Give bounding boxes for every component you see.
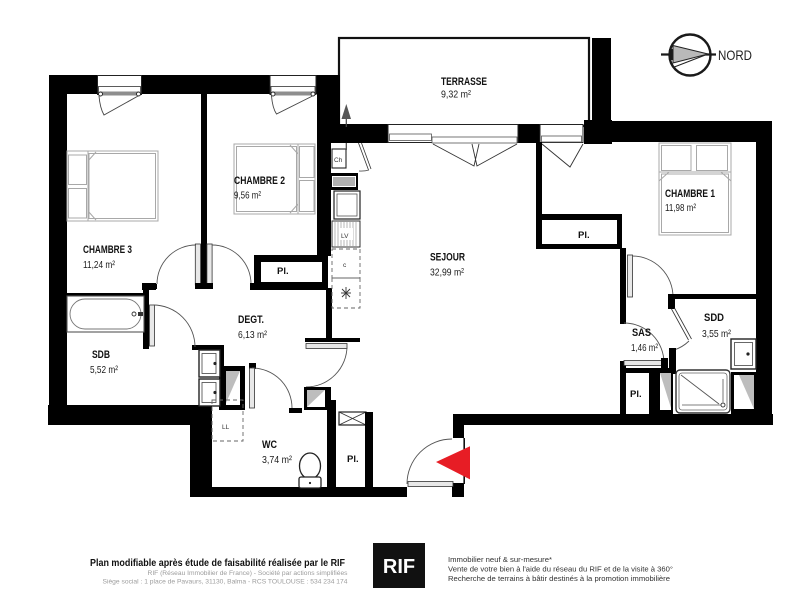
svg-text:Immobilier neuf & sur-mesure*: Immobilier neuf & sur-mesure* (448, 555, 552, 564)
svg-text:6,13 m²: 6,13 m² (238, 329, 267, 341)
svg-text:Ch: Ch (334, 157, 343, 164)
svg-text:Pl.: Pl. (347, 454, 359, 465)
svg-text:Recherche de terrains à bâtir: Recherche de terrains à bâtir destinés à… (448, 574, 670, 583)
svg-text:32,99 m²: 32,99 m² (430, 267, 464, 279)
svg-text:SAS: SAS (632, 327, 651, 339)
svg-text:3,55 m²: 3,55 m² (702, 328, 731, 340)
svg-text:WC: WC (262, 439, 277, 451)
svg-text:CHAMBRE 2: CHAMBRE 2 (234, 175, 285, 187)
svg-text:11,24 m²: 11,24 m² (83, 259, 115, 271)
svg-text:NORD: NORD (718, 47, 752, 63)
svg-text:11,98 m²: 11,98 m² (665, 202, 696, 214)
svg-text:5,52 m²: 5,52 m² (90, 364, 118, 376)
svg-text:TERRASSE: TERRASSE (441, 76, 487, 88)
svg-text:LV: LV (341, 233, 349, 240)
svg-text:3,74 m²: 3,74 m² (262, 454, 292, 466)
svg-text:SDD: SDD (704, 312, 724, 324)
svg-text:Siège social : 1 place de Pava: Siège social : 1 place de Pavaurs, 31130… (103, 579, 348, 586)
svg-text:LL: LL (222, 424, 230, 431)
svg-text:CHAMBRE 3: CHAMBRE 3 (83, 244, 132, 256)
svg-text:DEGT.: DEGT. (238, 314, 264, 326)
svg-text:Pl.: Pl. (630, 389, 642, 400)
svg-text:RIF: RIF (383, 556, 415, 578)
svg-text:Pl.: Pl. (578, 230, 590, 241)
svg-text:9,32 m²: 9,32 m² (441, 89, 471, 101)
svg-text:SEJOUR: SEJOUR (430, 252, 465, 264)
svg-text:RIF (Réseau Immobilier de Fran: RIF (Réseau Immobilier de France) - Soci… (148, 570, 349, 577)
svg-text:CHAMBRE 1: CHAMBRE 1 (665, 188, 715, 200)
svg-text:1,46 m²: 1,46 m² (631, 342, 658, 354)
svg-text:Plan modifiable après étude de: Plan modifiable après étude de faisabili… (90, 558, 345, 569)
svg-text:Vente de votre bien à l'aide d: Vente de votre bien à l'aide du réseau d… (448, 565, 673, 574)
svg-text:Pl.: Pl. (277, 266, 289, 277)
svg-text:9,56 m²: 9,56 m² (234, 190, 261, 202)
svg-text:SDB: SDB (92, 349, 110, 361)
